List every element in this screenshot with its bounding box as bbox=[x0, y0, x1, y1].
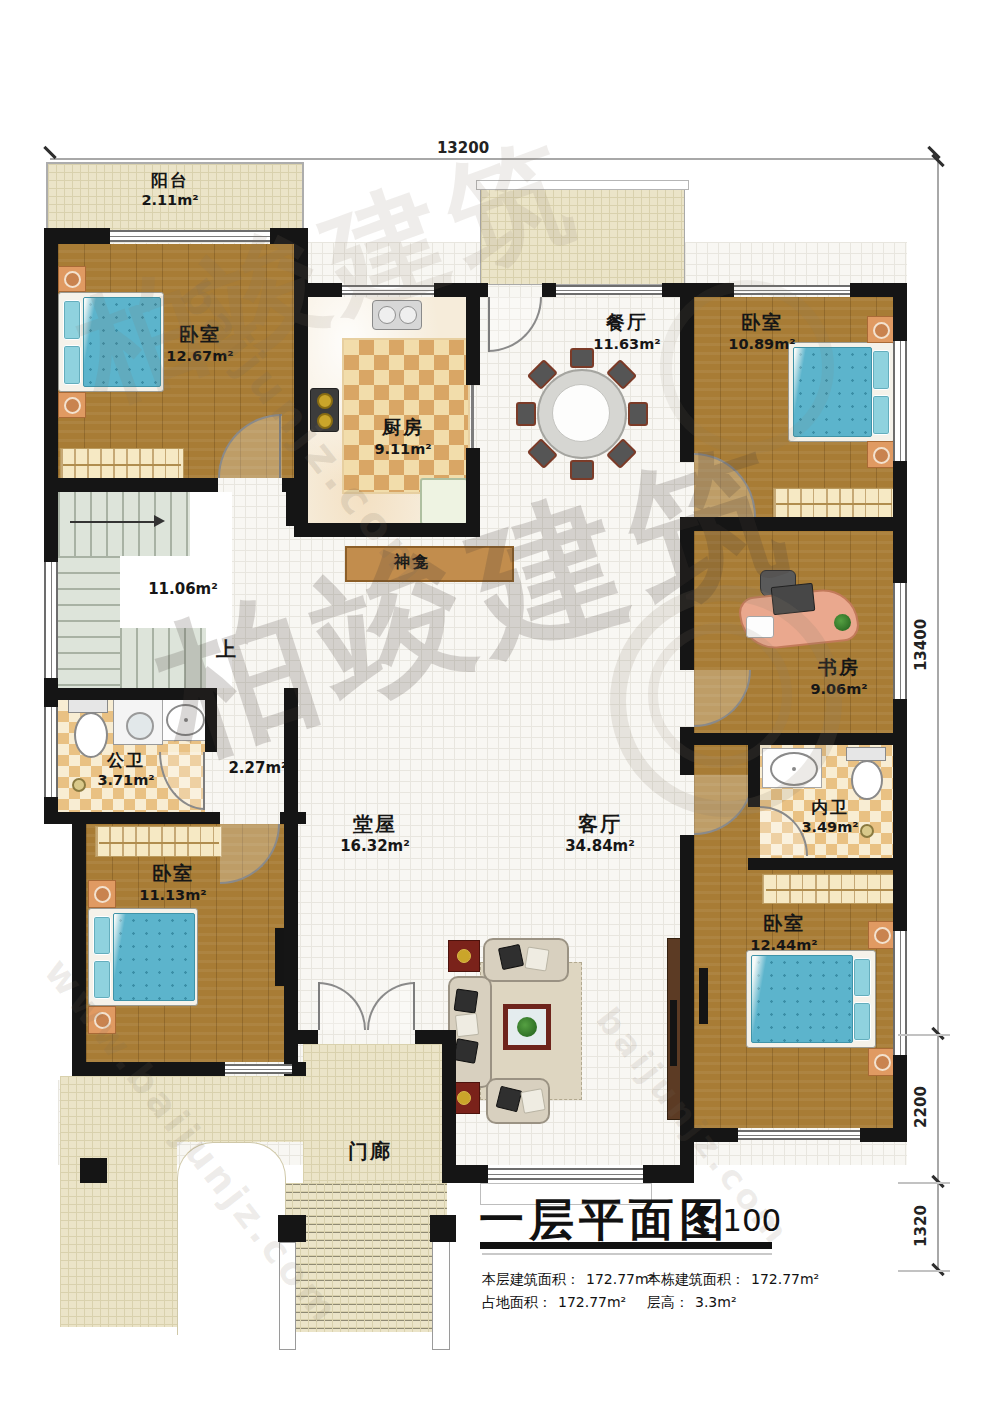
study-label: 书房 9.06m² bbox=[810, 656, 867, 698]
nightstand bbox=[88, 1006, 116, 1034]
inner-toilet-bowl bbox=[851, 760, 883, 800]
coffee-table-plant bbox=[517, 1017, 537, 1037]
wall bbox=[284, 688, 298, 1076]
sofa-cushion bbox=[455, 1013, 479, 1037]
wall bbox=[292, 1062, 306, 1076]
corridor-label: 2.27m² bbox=[228, 759, 287, 778]
wall bbox=[860, 1128, 907, 1142]
porch-rail-right bbox=[432, 1240, 450, 1350]
drawing-scale: 1:100 bbox=[692, 1202, 781, 1238]
desk-plant bbox=[834, 614, 851, 631]
nightstand bbox=[88, 880, 116, 908]
wall bbox=[480, 283, 488, 297]
dining-chair bbox=[628, 402, 648, 426]
stair-flight-top bbox=[58, 492, 190, 556]
wall bbox=[748, 745, 760, 807]
wall bbox=[286, 478, 302, 526]
bedroom-bl-label: 卧室 11.13m² bbox=[139, 862, 206, 904]
stove-burner bbox=[317, 393, 333, 409]
wall bbox=[680, 297, 694, 462]
dimension-guide bbox=[898, 1270, 950, 1272]
public-toilet-tank bbox=[68, 699, 108, 713]
inner-toilet-tank bbox=[846, 747, 886, 761]
wall bbox=[442, 1165, 488, 1183]
patio-floor bbox=[480, 188, 685, 285]
dimension-guide bbox=[898, 1034, 950, 1036]
sofa-cushion bbox=[520, 1088, 545, 1113]
wall bbox=[442, 1030, 456, 1183]
kitchen-label: 厨房 9.11m² bbox=[374, 416, 431, 458]
public-bath-basin bbox=[166, 704, 205, 736]
wall bbox=[294, 523, 480, 537]
sink-basin bbox=[399, 306, 417, 324]
pillow bbox=[93, 960, 111, 999]
hall-label: 堂屋 16.32m² bbox=[340, 812, 410, 856]
bed-tr bbox=[788, 342, 895, 442]
bedroom-bl-tv bbox=[275, 928, 284, 986]
wall bbox=[643, 1165, 694, 1183]
washing-machine bbox=[113, 699, 163, 745]
stair-arrow-line bbox=[70, 521, 154, 523]
wall bbox=[284, 1030, 318, 1044]
stair-arrow-head bbox=[154, 515, 165, 527]
wall bbox=[694, 517, 907, 531]
bedroom-br-tv bbox=[699, 968, 708, 1024]
living-window bbox=[488, 1168, 643, 1180]
window bbox=[44, 707, 58, 797]
window bbox=[44, 562, 58, 678]
wall bbox=[44, 478, 218, 492]
mattress bbox=[751, 955, 853, 1043]
wardrobe-tl bbox=[60, 448, 184, 479]
pillow bbox=[93, 916, 111, 955]
porch-rail-left bbox=[279, 1242, 296, 1350]
door-leaf bbox=[279, 414, 281, 478]
living-label: 客厅 34.84m² bbox=[565, 812, 635, 856]
dimension-right-label-1320: 1320 bbox=[912, 1205, 930, 1247]
wall bbox=[44, 228, 58, 562]
stair-flight-bottom bbox=[120, 628, 206, 688]
dimension-top-label: 13200 bbox=[437, 139, 489, 157]
door-leaf bbox=[488, 297, 490, 352]
dining-chair bbox=[570, 348, 594, 368]
nightstand bbox=[58, 392, 86, 418]
shrine-label: 神龛 bbox=[394, 552, 430, 572]
pillow bbox=[872, 350, 890, 390]
dimension-line-top bbox=[50, 158, 935, 160]
porch-pillar-step-right bbox=[430, 1215, 456, 1242]
porch-pillar-left bbox=[80, 1158, 107, 1183]
stove-burner bbox=[317, 413, 333, 429]
sink-basin bbox=[378, 306, 396, 324]
pillow bbox=[63, 300, 81, 340]
floor-plan: 神龛 bbox=[0, 0, 1000, 1416]
wall bbox=[72, 1062, 225, 1076]
inner-bath-label: 内卫 3.49m² bbox=[801, 797, 858, 836]
dimension-line-right bbox=[937, 162, 939, 1272]
dining-window bbox=[556, 285, 662, 295]
wardrobe-bl bbox=[95, 826, 222, 857]
bedroom-br-label: 卧室 12.44m² bbox=[750, 912, 817, 954]
bedroom-tr-label: 卧室 10.89m² bbox=[728, 311, 795, 353]
stairwell-area-label: 11.06m² bbox=[148, 580, 218, 599]
porch-steps bbox=[284, 1183, 447, 1332]
stair-flight-left bbox=[58, 556, 120, 688]
sofa-cushion bbox=[498, 944, 524, 970]
window bbox=[893, 341, 907, 461]
bed-sheet bbox=[83, 298, 109, 386]
stat-floor-area: 本层建筑面积：172.77m² bbox=[482, 1271, 654, 1289]
balcony-label: 阳台 2.11m² bbox=[141, 170, 198, 209]
nightstand bbox=[867, 316, 895, 343]
dining-chair bbox=[570, 460, 594, 480]
nightstand bbox=[868, 921, 896, 949]
floor-drain bbox=[72, 778, 86, 792]
wall bbox=[680, 1128, 738, 1142]
wall bbox=[694, 733, 907, 745]
wardrobe-tr bbox=[773, 488, 895, 518]
title-underline bbox=[480, 1242, 772, 1249]
sofa-cushion bbox=[524, 946, 549, 971]
inner-bath-basin bbox=[770, 752, 818, 786]
window bbox=[893, 931, 907, 1055]
kitchen-sink bbox=[372, 300, 422, 330]
nightstand bbox=[58, 266, 86, 292]
bed-br bbox=[746, 950, 876, 1048]
window bbox=[893, 583, 907, 699]
dimension-right-label-2200: 2200 bbox=[912, 1086, 930, 1128]
wall bbox=[466, 448, 480, 537]
wall bbox=[748, 858, 907, 870]
wall bbox=[466, 297, 480, 385]
bed-sheet bbox=[793, 348, 819, 436]
outside-left-patch bbox=[36, 812, 72, 1080]
wall bbox=[542, 283, 556, 297]
dining-table-top bbox=[552, 384, 610, 442]
mattress bbox=[83, 297, 161, 387]
door-leaf bbox=[203, 752, 205, 810]
bed-sheet bbox=[751, 956, 782, 1042]
pillow bbox=[63, 345, 81, 385]
pillow bbox=[853, 1002, 871, 1041]
porch-label: 门廊 bbox=[348, 1139, 392, 1164]
bedroom-br-window bbox=[738, 1130, 860, 1140]
bedroom-tl-label: 卧室 12.67m² bbox=[166, 323, 233, 365]
desk-monitor bbox=[771, 583, 816, 615]
bed-tl bbox=[58, 292, 164, 392]
sofa-cushion bbox=[454, 989, 479, 1014]
nightstand bbox=[868, 1048, 896, 1076]
wardrobe-br bbox=[762, 874, 898, 904]
public-bath-label: 公卫 3.71m² bbox=[97, 750, 154, 789]
pillow bbox=[872, 395, 890, 435]
end-table bbox=[448, 940, 480, 972]
wall bbox=[893, 283, 907, 341]
wall bbox=[72, 812, 86, 1076]
door-leaf bbox=[413, 982, 415, 1030]
wall bbox=[205, 688, 217, 752]
fridge bbox=[420, 478, 468, 525]
wall bbox=[680, 727, 694, 775]
wall bbox=[662, 283, 694, 297]
stat-building-area: 本栋建筑面积：172.77m² bbox=[647, 1271, 819, 1289]
porch-pillar-step-left bbox=[278, 1215, 306, 1242]
patio-roof-edge bbox=[476, 180, 689, 190]
desk-printer bbox=[746, 616, 774, 638]
kitchen-window bbox=[342, 285, 434, 295]
bed-bl bbox=[88, 908, 198, 1006]
porch-cutout bbox=[177, 1142, 286, 1335]
wall bbox=[44, 812, 220, 824]
wall bbox=[680, 517, 694, 670]
bedroom-bl-window bbox=[225, 1064, 292, 1074]
stair-up-label: 上 bbox=[216, 637, 238, 662]
bedroom-tr-window-top bbox=[734, 285, 850, 295]
stat-floor-height: 层高：3.3m² bbox=[647, 1294, 737, 1312]
mattress bbox=[113, 913, 195, 1001]
dining-label: 餐厅 11.63m² bbox=[593, 311, 660, 353]
kitchen-sliding-door bbox=[471, 385, 474, 448]
stat-footprint-area: 占地面积：172.77m² bbox=[482, 1294, 626, 1312]
wall bbox=[434, 283, 480, 297]
mattress bbox=[793, 347, 872, 437]
door-leaf bbox=[318, 982, 320, 1030]
wall bbox=[294, 283, 342, 297]
wall bbox=[680, 835, 694, 1165]
bed-sheet bbox=[113, 914, 139, 1000]
floor-drain bbox=[860, 824, 874, 838]
porch-band bbox=[60, 1076, 303, 1142]
sofa-cushion bbox=[453, 1038, 478, 1063]
balcony-window bbox=[110, 230, 270, 242]
dining-chair bbox=[516, 402, 536, 426]
wall bbox=[694, 283, 734, 297]
nightstand bbox=[867, 441, 895, 468]
pillow bbox=[853, 958, 871, 997]
dimension-guide bbox=[898, 1182, 950, 1184]
dimension-right-label-13400: 13400 bbox=[912, 619, 930, 671]
wall bbox=[44, 688, 217, 700]
kitchen-stove bbox=[310, 388, 339, 432]
title-underline-light bbox=[482, 1253, 772, 1255]
living-tv bbox=[670, 1000, 677, 1066]
